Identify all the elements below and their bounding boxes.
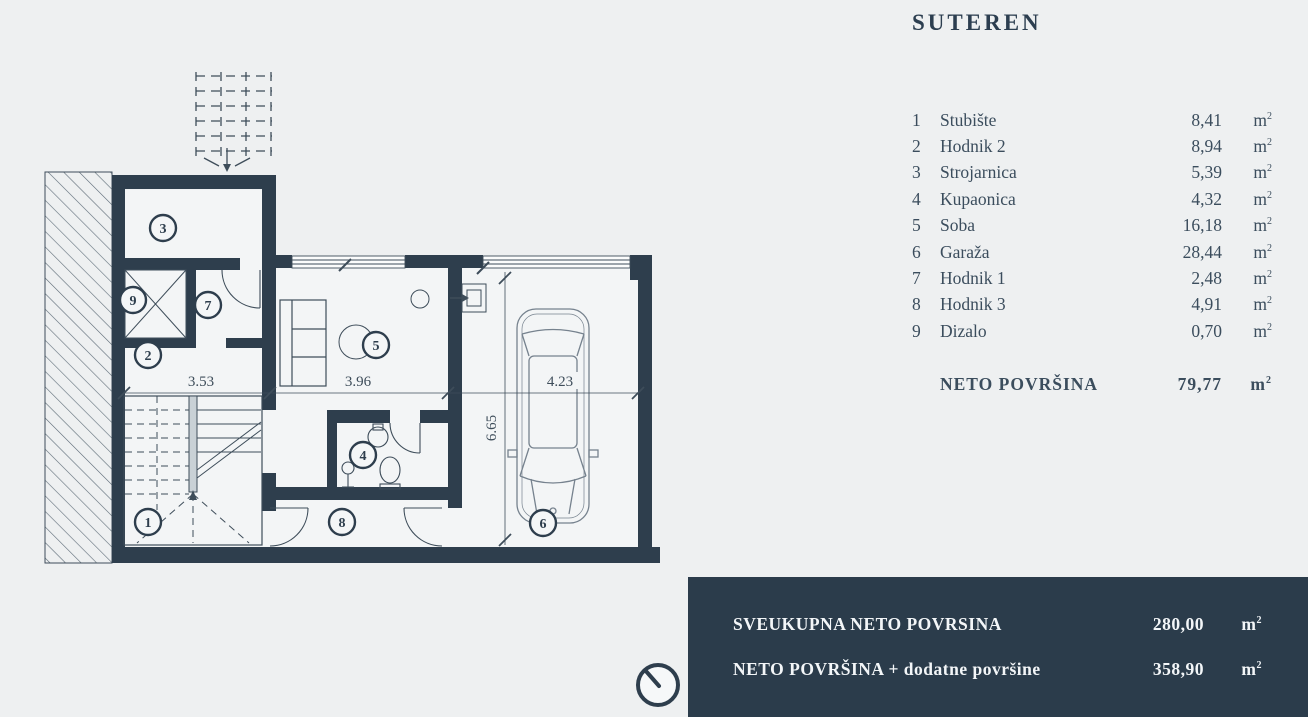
room-number: 6 xyxy=(912,242,940,263)
legend-total-row: NETO POVRŠINA 79,77 m2 xyxy=(912,372,1272,398)
summary-unit: m2 xyxy=(1204,659,1262,680)
svg-text:1: 1 xyxy=(145,516,152,531)
room-area-unit: m2 xyxy=(1222,268,1272,289)
legend-row: 2 Hodnik 2 8,94 m2 xyxy=(912,133,1272,159)
room-badge-7: 7 xyxy=(195,292,221,318)
room-area-unit: m2 xyxy=(1222,162,1272,183)
room-badge-8: 8 xyxy=(329,509,355,535)
legend-row: 5 Soba 16,18 m2 xyxy=(912,213,1272,239)
summary-value: 358,90 xyxy=(1114,659,1204,680)
dim-garage-w: 4.23 xyxy=(547,374,573,390)
summary-value: 280,00 xyxy=(1114,614,1204,635)
room-number: 4 xyxy=(912,189,940,210)
room-number: 5 xyxy=(912,215,940,236)
window-garage xyxy=(483,256,630,268)
room-name: Dizalo xyxy=(940,321,1146,342)
floorplan-svg: 3.53 3.96 4.23 6.65 1 2 3 4 5 6 7 8 9 xyxy=(0,0,690,717)
page-title: SUTEREN xyxy=(912,10,1272,36)
room-badge-3: 3 xyxy=(150,215,176,241)
room-area: 5,39 xyxy=(1146,162,1222,183)
exterior-stairs-dashed xyxy=(196,72,272,166)
room-badge-2: 2 xyxy=(135,342,161,368)
room-area-unit: m2 xyxy=(1222,189,1272,210)
room-number: 8 xyxy=(912,294,940,315)
dim-garage-d: 6.65 xyxy=(484,415,500,441)
room-area: 16,18 xyxy=(1146,215,1222,236)
room-number: 1 xyxy=(912,110,940,131)
legend-row: 3 Strojarnica 5,39 m2 xyxy=(912,160,1272,186)
room-number: 9 xyxy=(912,321,940,342)
retaining-wall-hatch xyxy=(45,172,112,563)
legend-row: 6 Garaža 28,44 m2 xyxy=(912,239,1272,265)
summary-row: SVEUKUPNA NETO POVRSINA 280,00 m2 xyxy=(733,614,1262,635)
svg-text:6: 6 xyxy=(540,517,547,532)
room-area: 0,70 xyxy=(1146,321,1222,342)
room-area: 4,91 xyxy=(1146,294,1222,315)
legend-row: 7 Hodnik 1 2,48 m2 xyxy=(912,265,1272,291)
room-area: 8,94 xyxy=(1146,136,1222,157)
page: 3.53 3.96 4.23 6.65 1 2 3 4 5 6 7 8 9 SU… xyxy=(0,0,1308,717)
room-area: 2,48 xyxy=(1146,268,1222,289)
summary-panel: SVEUKUPNA NETO POVRSINA 280,00 m2 NETO P… xyxy=(688,577,1308,717)
room-area-unit: m2 xyxy=(1222,136,1272,157)
room-number: 3 xyxy=(912,162,940,183)
legend-row: 4 Kupaonica 4,32 m2 xyxy=(912,186,1272,212)
dim-room2: 3.53 xyxy=(188,374,214,390)
svg-text:3: 3 xyxy=(160,222,167,237)
svg-text:9: 9 xyxy=(130,294,137,309)
room-badge-9: 9 xyxy=(120,287,146,313)
dim-room5: 3.96 xyxy=(345,374,372,390)
room-name: Hodnik 2 xyxy=(940,136,1146,157)
room-name: Stubište xyxy=(940,110,1146,131)
exterior-stairs-arrow xyxy=(223,164,231,172)
room-area-unit: m2 xyxy=(1222,321,1272,342)
total-unit: m2 xyxy=(1222,374,1272,395)
room-badge-6: 6 xyxy=(530,510,556,536)
room-area-unit: m2 xyxy=(1222,215,1272,236)
summary-label: NETO POVRŠINA + dodatne površine xyxy=(733,659,1114,680)
summary-row: NETO POVRŠINA + dodatne površine 358,90 … xyxy=(733,659,1262,680)
room-number: 7 xyxy=(912,268,940,289)
svg-text:4: 4 xyxy=(360,449,367,464)
room-name: Hodnik 3 xyxy=(940,294,1146,315)
room-area-unit: m2 xyxy=(1222,294,1272,315)
room-area-unit: m2 xyxy=(1222,110,1272,131)
room-badge-4: 4 xyxy=(350,442,376,468)
room-badge-5: 5 xyxy=(363,332,389,358)
summary-unit: m2 xyxy=(1204,614,1262,635)
room-number: 2 xyxy=(912,136,940,157)
room-legend: SUTEREN 1 Stubište 8,41 m2 2 Hodnik 2 8,… xyxy=(912,10,1272,398)
room-name: Garaža xyxy=(940,242,1146,263)
room-name: Kupaonica xyxy=(940,189,1146,210)
room-area-unit: m2 xyxy=(1222,242,1272,263)
svg-text:5: 5 xyxy=(373,339,380,354)
legend-row: 1 Stubište 8,41 m2 xyxy=(912,107,1272,133)
room-name: Strojarnica xyxy=(940,162,1146,183)
svg-text:7: 7 xyxy=(205,299,212,314)
room-area: 4,32 xyxy=(1146,189,1222,210)
room-area: 8,41 xyxy=(1146,110,1222,131)
total-value: 79,77 xyxy=(1146,374,1222,395)
svg-text:2: 2 xyxy=(145,349,152,364)
clock-icon xyxy=(634,661,682,709)
room-area: 28,44 xyxy=(1146,242,1222,263)
room-badge-1: 1 xyxy=(135,509,161,535)
summary-label: SVEUKUPNA NETO POVRSINA xyxy=(733,614,1114,635)
svg-text:8: 8 xyxy=(339,516,346,531)
total-label: NETO POVRŠINA xyxy=(940,374,1146,395)
room-name: Soba xyxy=(940,215,1146,236)
room-name: Hodnik 1 xyxy=(940,268,1146,289)
legend-row: 9 Dizalo 0,70 m2 xyxy=(912,318,1272,344)
legend-row: 8 Hodnik 3 4,91 m2 xyxy=(912,292,1272,318)
legend-rows: 1 Stubište 8,41 m2 2 Hodnik 2 8,94 m2 3 … xyxy=(912,107,1272,345)
